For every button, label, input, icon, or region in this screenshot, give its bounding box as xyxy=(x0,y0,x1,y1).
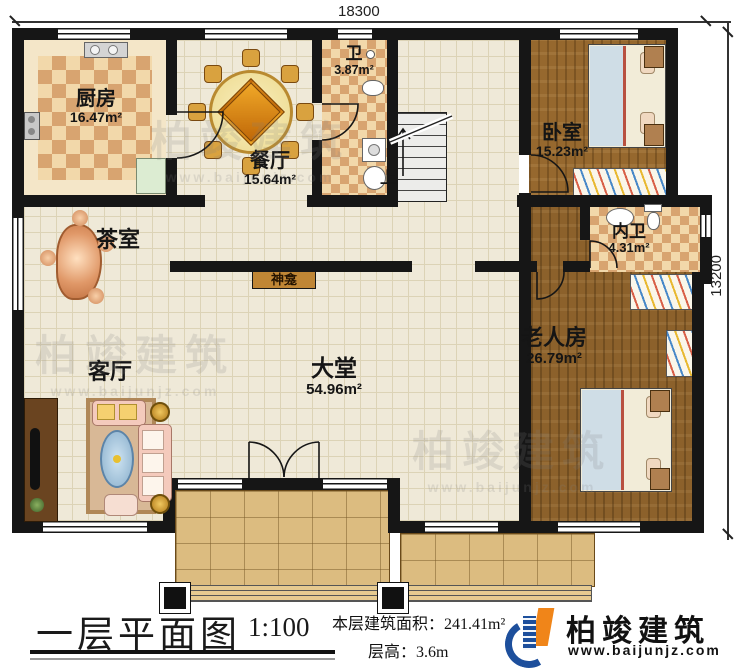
porch-right xyxy=(400,533,595,587)
nightstand xyxy=(650,468,670,490)
plan-scale: 1:100 xyxy=(248,612,310,643)
tea-stool xyxy=(72,210,88,226)
coffee-table-dot xyxy=(113,455,121,463)
elder-wardrobe xyxy=(630,274,694,310)
kitchen-sink-bowl xyxy=(108,45,118,55)
dining-chair xyxy=(204,65,222,83)
shrine: 神龛 xyxy=(252,271,316,289)
sofa-cushion xyxy=(97,404,115,420)
staircase xyxy=(397,112,447,202)
tea-stool xyxy=(40,250,56,266)
window xyxy=(58,28,130,40)
sofa-side-cushion xyxy=(142,453,164,473)
wall xyxy=(692,272,704,533)
toilet xyxy=(362,80,384,96)
shrine-label: 神龛 xyxy=(271,272,297,287)
window xyxy=(12,218,24,310)
bedroom-wardrobe xyxy=(573,168,668,196)
window xyxy=(560,28,638,40)
tv xyxy=(30,428,40,490)
wall xyxy=(12,195,205,207)
stairs-up-label: 上 xyxy=(378,170,398,188)
window xyxy=(205,28,287,40)
side-table xyxy=(150,494,170,514)
elder-closet xyxy=(666,330,694,377)
elder-blanket xyxy=(582,390,624,490)
wall xyxy=(692,272,712,284)
dining-chair xyxy=(204,141,222,159)
dimension-line-top xyxy=(12,21,731,23)
window xyxy=(700,215,712,237)
room-label-ensuite: 内卫 4.31m² xyxy=(598,222,660,256)
ensuite-toilet-tank xyxy=(644,204,662,212)
room-label-living-room: 客厅 xyxy=(78,360,142,385)
logo-tower-blue-icon xyxy=(523,616,536,650)
pouf xyxy=(104,494,138,516)
side-table xyxy=(150,402,170,422)
wall xyxy=(580,195,590,240)
porch-left xyxy=(175,490,390,587)
dimension-width: 18300 xyxy=(338,3,380,20)
window xyxy=(178,478,242,490)
sofa-side-cushion xyxy=(142,430,164,450)
dining-chair xyxy=(281,65,299,83)
wall xyxy=(563,261,590,272)
nightstand xyxy=(644,124,664,146)
stove-burner xyxy=(28,128,35,135)
title-underline-thick xyxy=(30,650,335,654)
room-label-dining: 餐厅 15.64m² xyxy=(230,150,310,188)
wall xyxy=(517,195,712,207)
dining-chair xyxy=(188,103,206,121)
dining-chair xyxy=(296,103,314,121)
nightstand xyxy=(644,46,664,68)
wall xyxy=(166,28,177,115)
floor-height-label: 层高： xyxy=(368,644,416,661)
kitchen-sink-bowl xyxy=(90,45,100,55)
window xyxy=(338,28,372,40)
company-website: www.baijunjz.com xyxy=(568,642,721,658)
company-logo xyxy=(505,604,561,660)
room-label-tea-room: 茶室 xyxy=(86,228,150,253)
wall xyxy=(312,28,322,103)
floor-height-line: 层高：3.6m xyxy=(368,638,448,662)
stove-burner xyxy=(28,116,35,123)
title-underline-thin xyxy=(30,658,335,660)
room-label-main-hall: 大堂 54.96m² xyxy=(296,356,372,399)
wall xyxy=(666,28,678,207)
dimension-line-right xyxy=(727,21,729,540)
window xyxy=(323,478,387,490)
washing-machine-door xyxy=(368,144,380,156)
room-label-bedroom: 卧室 15.23m² xyxy=(520,122,604,160)
room-label-bath: 卫 3.87m² xyxy=(330,44,378,77)
plant xyxy=(30,498,44,512)
tea-stool xyxy=(88,288,104,304)
floor-area-line: 本层建筑面积：241.41m² xyxy=(332,610,505,634)
room-label-elder-room: 老人房 26.79m² xyxy=(506,326,602,367)
floor-height-value: 3.6m xyxy=(416,644,448,661)
wall xyxy=(312,140,322,207)
floor-area-label: 本层建筑面积： xyxy=(332,616,444,633)
fridge xyxy=(136,158,166,194)
floor-area-value: 241.41m² xyxy=(444,616,505,633)
window xyxy=(43,521,147,533)
dining-chair xyxy=(242,49,260,67)
wall xyxy=(700,195,712,284)
nightstand xyxy=(650,390,670,412)
window xyxy=(425,521,498,533)
porch-column xyxy=(378,583,408,613)
sofa-side-cushion xyxy=(142,476,164,496)
sofa-cushion xyxy=(119,404,137,420)
room-label-kitchen: 厨房 16.47m² xyxy=(56,88,136,126)
window xyxy=(558,521,640,533)
floorplan-sheet: 18300 13200 xyxy=(0,0,750,670)
